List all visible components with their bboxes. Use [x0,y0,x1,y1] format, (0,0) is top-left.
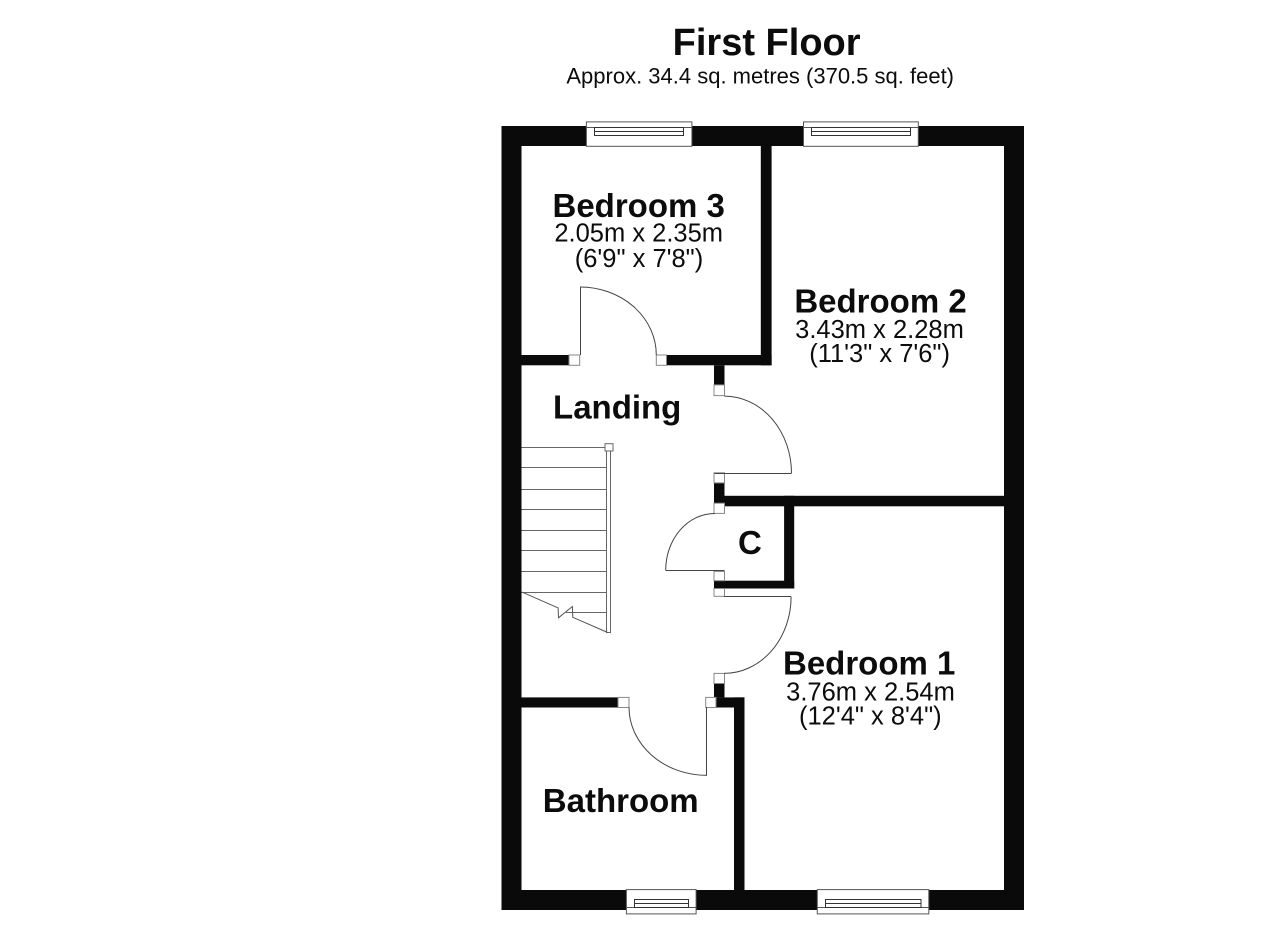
svg-text:Bathroom: Bathroom [543,782,699,819]
svg-text:Landing: Landing [553,389,681,426]
svg-text:2.05m x 2.35m: 2.05m x 2.35m [554,220,723,248]
svg-text:C: C [738,524,762,561]
svg-text:Bedroom 2: Bedroom 2 [794,283,966,320]
svg-text:Approx. 34.4 sq. metres (370.5: Approx. 34.4 sq. metres (370.5 sq. feet) [566,64,954,89]
svg-text:(11'3" x 7'6"): (11'3" x 7'6") [809,340,950,368]
svg-text:Bedroom 3: Bedroom 3 [553,187,725,224]
svg-text:Bedroom 1: Bedroom 1 [783,645,955,682]
svg-text:First Floor: First Floor [673,22,861,64]
svg-text:(6'9" x 7'8"): (6'9" x 7'8") [575,245,703,273]
svg-text:(12'4" x 8'4"): (12'4" x 8'4") [799,702,942,730]
